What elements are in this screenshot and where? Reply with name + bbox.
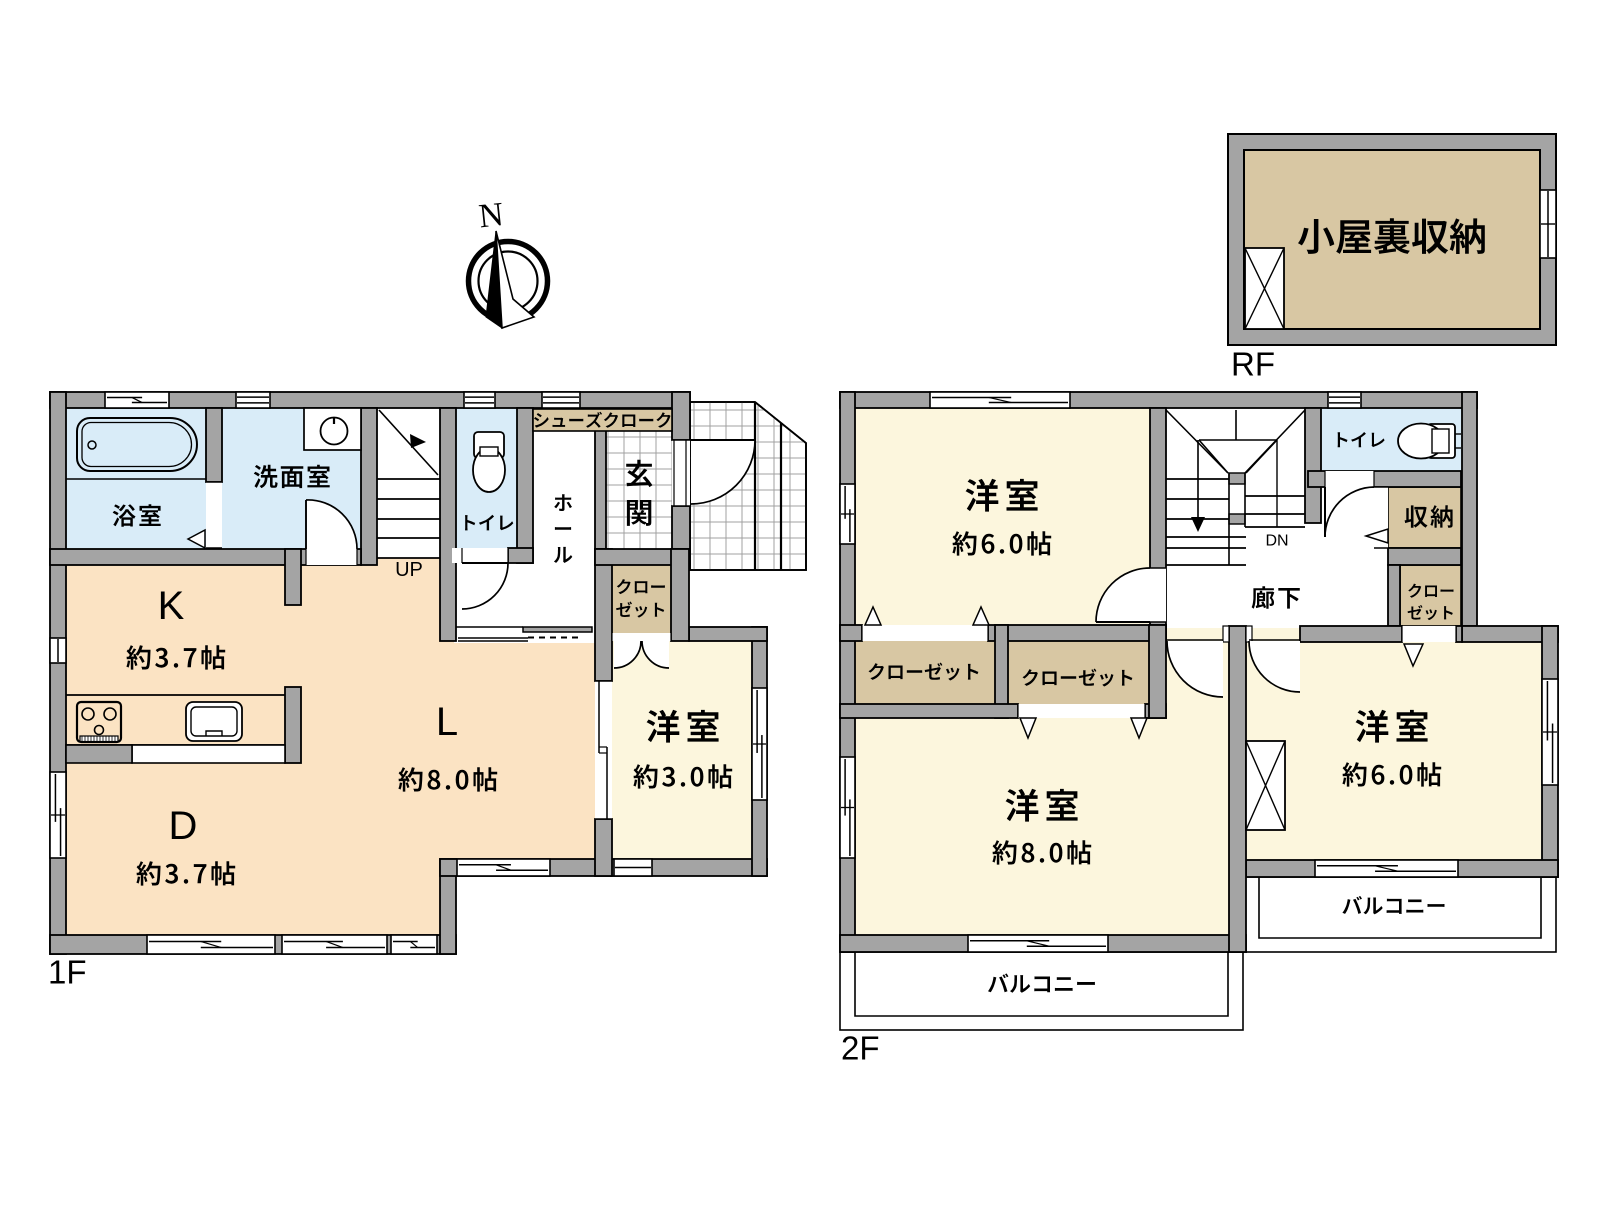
- svg-text:2F: 2F: [841, 1030, 880, 1067]
- svg-text:RF: RF: [1231, 346, 1275, 383]
- svg-text:D: D: [169, 804, 198, 848]
- svg-text:UP: UP: [395, 559, 423, 581]
- svg-text:1F: 1F: [48, 954, 87, 991]
- svg-text:L: L: [436, 700, 458, 744]
- svg-text:K: K: [158, 584, 185, 628]
- svg-text:DN: DN: [1265, 533, 1288, 550]
